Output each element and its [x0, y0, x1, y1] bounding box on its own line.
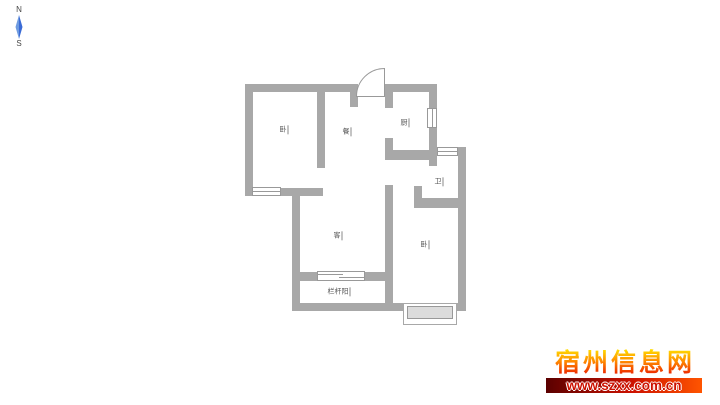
floor-plan: 卧 餐 厨 卫 客 卧 栏杆阳	[0, 0, 720, 405]
wall-segment	[429, 128, 437, 150]
room-label-bathroom: 卫	[435, 177, 444, 186]
window	[437, 147, 458, 156]
window	[427, 108, 437, 128]
wall-segment	[292, 196, 300, 311]
room-label-dining: 餐	[343, 127, 352, 136]
window	[252, 187, 281, 196]
watermark-site-name: 宿州信息网	[546, 349, 704, 377]
balcony-sliding-door	[317, 271, 365, 281]
wall-segment	[429, 84, 437, 108]
bay-window-sill	[407, 306, 453, 319]
room-label-bedroom-bottom-right: 卧	[421, 240, 430, 249]
room-label-bedroom-top-left: 卧	[280, 125, 289, 134]
entry-door-icon	[356, 68, 386, 98]
wall-segment	[385, 185, 393, 311]
wall-segment	[385, 88, 393, 108]
wall-segment	[292, 303, 406, 311]
wall-segment	[245, 84, 358, 92]
wall-segment	[245, 84, 253, 196]
room-label-balcony: 栏杆阳	[328, 287, 351, 296]
wall-segment	[429, 150, 437, 166]
wall-segment	[458, 147, 466, 311]
site-watermark: 宿州信息网 www.szxx.com.cn	[546, 349, 704, 393]
wall-segment	[317, 92, 325, 168]
wall-segment	[414, 198, 458, 208]
watermark-url-bar: www.szxx.com.cn	[546, 378, 702, 393]
room-label-living: 客	[334, 231, 343, 240]
watermark-site-url: www.szxx.com.cn	[566, 378, 681, 393]
room-label-kitchen: 厨	[401, 118, 410, 127]
